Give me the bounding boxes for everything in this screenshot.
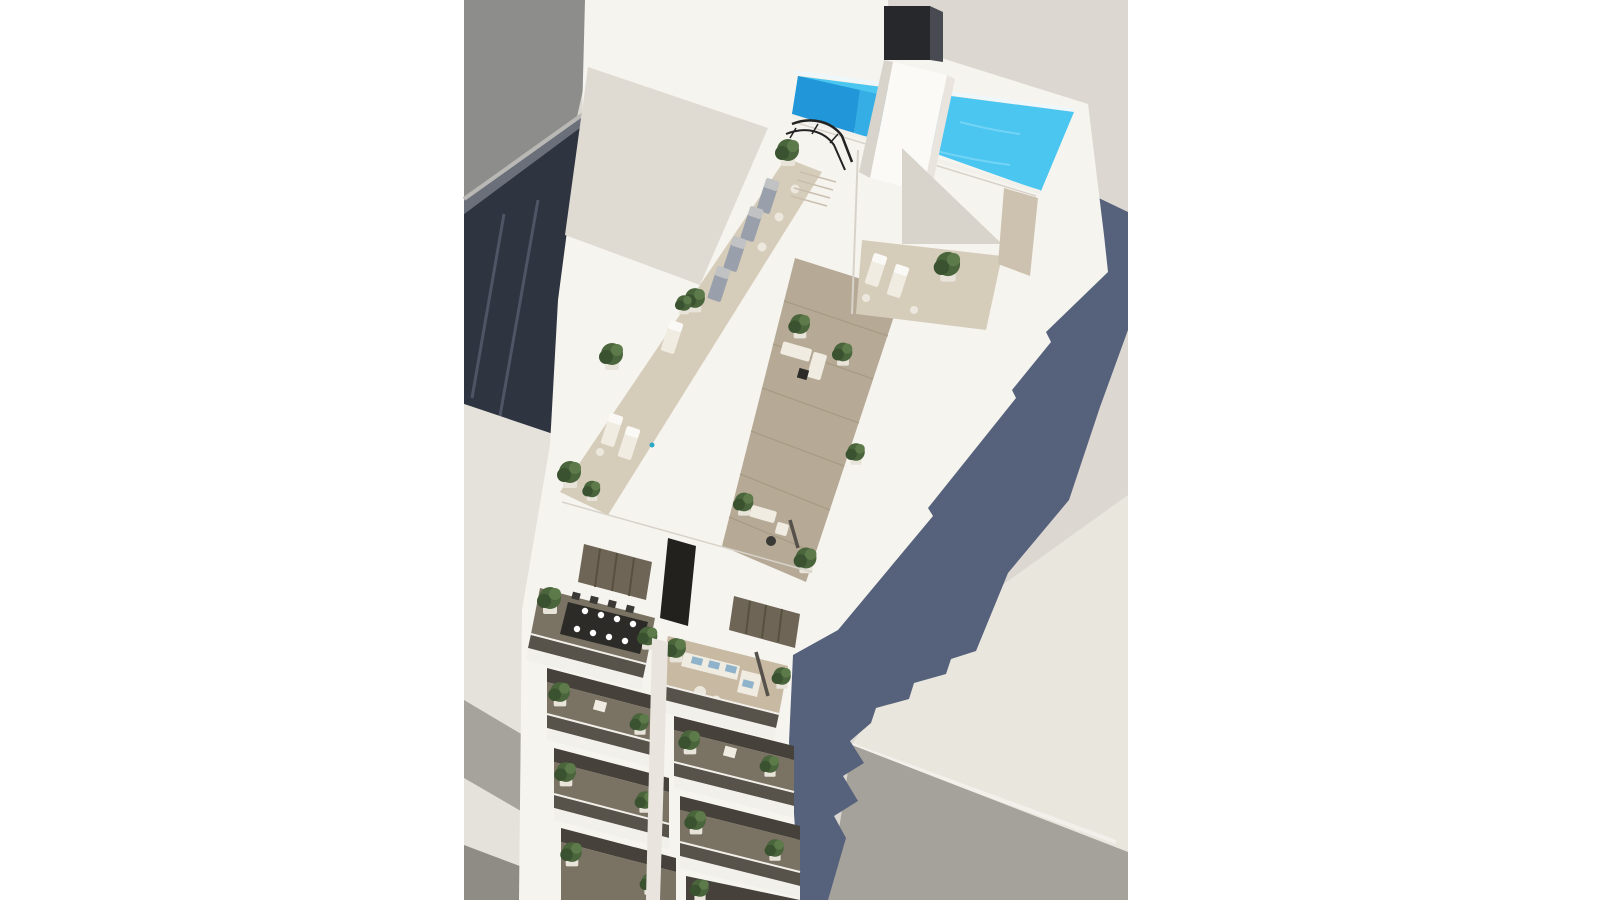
chimney-front [884,6,930,60]
side-table [596,448,604,456]
roof-skylight-dot [650,443,655,448]
side-table [775,213,784,222]
side-table [758,243,767,252]
chimney [884,6,943,62]
render-canvas [0,0,1600,900]
chimney-side [930,6,943,62]
side-table [862,294,870,302]
side-table [910,306,918,314]
coffee-table [766,536,776,546]
architectural-render [0,0,1600,900]
